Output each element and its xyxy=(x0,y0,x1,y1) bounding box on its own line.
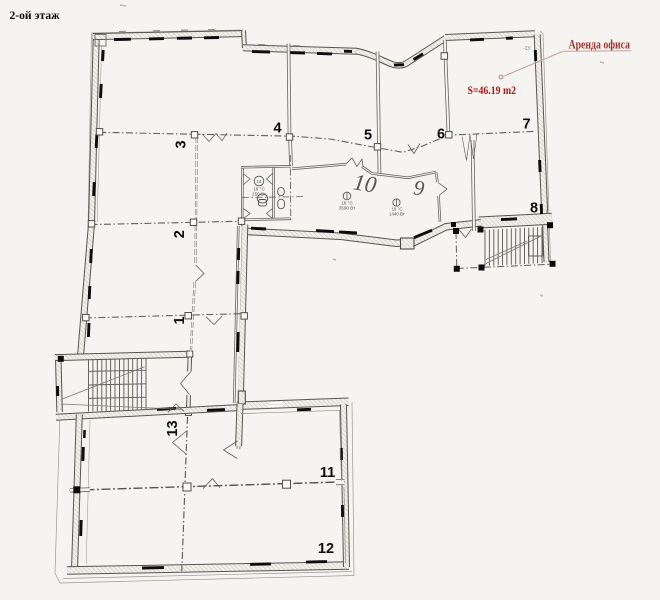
svg-text:1440 Вт: 1440 Вт xyxy=(389,211,405,216)
svg-text:14: 14 xyxy=(256,179,262,184)
svg-text:6: 6 xyxy=(437,127,445,143)
svg-text:7: 7 xyxy=(522,117,530,133)
svg-text:3590 Вт: 3590 Вт xyxy=(339,206,356,211)
svg-text:8: 8 xyxy=(530,201,538,217)
svg-text:5: 5 xyxy=(364,128,372,144)
svg-text:13: 13 xyxy=(165,420,181,436)
svg-text:Аренда офиса: Аренда офиса xyxy=(569,37,631,51)
svg-text:10: 10 xyxy=(352,169,379,197)
svg-text:11: 11 xyxy=(320,465,335,481)
svg-text:S=46.19 m2: S=46.19 m2 xyxy=(468,85,517,97)
svg-text:2-ой этаж: 2-ой этаж xyxy=(9,9,60,22)
svg-text:-1У: -1У xyxy=(523,46,531,52)
svg-text:2: 2 xyxy=(172,230,188,238)
svg-text:4: 4 xyxy=(273,121,281,137)
svg-text:3: 3 xyxy=(174,140,190,148)
svg-text:12: 12 xyxy=(318,541,334,557)
svg-text:1: 1 xyxy=(172,316,188,324)
